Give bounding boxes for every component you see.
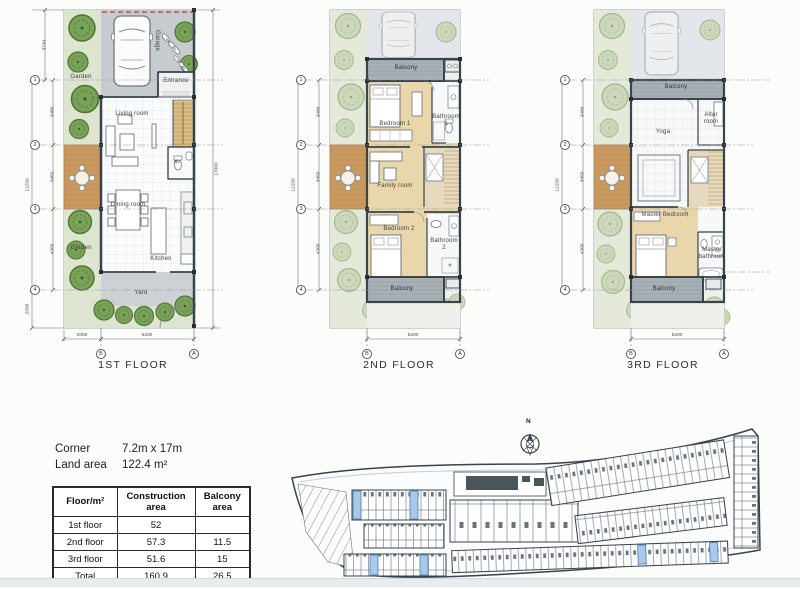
second-floor-plan: Balcony Bedroom 1 Bathroom 1 Family room…: [274, 2, 524, 394]
first-floor-plan: Garden Garage Entrance Living room wc Ga…: [8, 2, 258, 394]
col-balcony-area: Balcony area: [195, 487, 250, 517]
col-construction-area: Construction area: [117, 487, 195, 517]
grid-bubble-4: 4: [30, 285, 40, 295]
grid-bubble-1: 1: [560, 75, 570, 85]
table-header-row: Floor/m² Construction area Balcony area: [53, 487, 250, 517]
label-bathroom1: Bathroom 1: [432, 114, 460, 128]
cell-floor: 2nd floor: [53, 534, 117, 551]
housing-row: [364, 524, 444, 548]
dim-w-garden: 2000: [77, 333, 88, 338]
dim-w-house: 5200: [142, 333, 153, 338]
second-floor-title: 2ND FLOOR: [274, 359, 524, 371]
cell-balcony: 15: [195, 551, 250, 568]
north-arrow-icon: [521, 433, 539, 455]
label-master-bedroom: Master Bedroom: [634, 212, 696, 219]
dim-w-house: 5200: [408, 333, 419, 338]
grid-bubble-a: A: [719, 349, 729, 359]
grid-bubble-b: B: [362, 349, 372, 359]
dim-v-top: 3740: [43, 40, 48, 51]
grid-bubble-2: 2: [30, 140, 40, 150]
table-row: 2nd floor 57.3 11.5: [53, 534, 250, 551]
housing-row: [344, 554, 446, 576]
dim-v2: 3450: [581, 172, 586, 183]
ghost-car-icon: [380, 12, 418, 58]
label-garage: Garage: [153, 30, 160, 51]
master-site-plan: N: [286, 420, 798, 584]
highlighted-unit: [638, 545, 647, 564]
corner-label: Corner: [55, 443, 90, 455]
north-label: N: [526, 418, 531, 425]
label-balcony-bottom: Balcony: [372, 286, 432, 293]
bedroom2-furniture: [370, 215, 401, 277]
deck: [64, 145, 101, 209]
label-garden-mid: Garden: [66, 245, 96, 252]
dim-v-total: 11230: [26, 179, 31, 192]
third-floor-drawing: [538, 2, 788, 394]
grid-bubble-1: 1: [296, 75, 306, 85]
label-bedroom1: Bedroom 1: [370, 121, 420, 128]
grid-bubble-b: B: [96, 349, 106, 359]
deck: [330, 145, 367, 209]
col-floor: Floor/m²: [53, 487, 117, 517]
land-area-value: 122.4 m²: [122, 459, 167, 471]
label-altar-room: Altar room: [698, 112, 724, 126]
grid-bubble-2: 2: [560, 140, 570, 150]
ghost-car-icon: [643, 12, 681, 75]
label-family-room: Family room: [370, 183, 420, 190]
label-dining-room: Dining room: [107, 202, 149, 209]
dim-v-total: 11230: [556, 179, 561, 192]
highlighted-unit: [710, 542, 719, 561]
second-floor-drawing: [274, 2, 524, 394]
highlighted-unit: [410, 491, 418, 519]
dim-v1: 3480: [51, 107, 56, 118]
cell-balcony: [195, 517, 250, 534]
cell-floor: 1st floor: [53, 517, 117, 534]
cell-balcony: 11.5: [195, 534, 250, 551]
grid-bubble-2: 2: [296, 140, 306, 150]
land-area-label: Land area: [55, 459, 107, 471]
first-floor-title: 1ST FLOOR: [8, 359, 258, 371]
car-icon: [112, 16, 153, 86]
dim-v2: 3450: [51, 172, 56, 183]
dim-w-house: 5200: [672, 333, 683, 338]
label-bedroom2: Bedroom 2: [374, 226, 424, 233]
label-master-bathroom: Master bathroom: [698, 247, 726, 261]
label-yard: Yard: [126, 290, 156, 297]
label-balcony-top: Balcony: [372, 65, 440, 72]
area-table: Floor/m² Construction area Balcony area …: [52, 486, 251, 586]
label-balcony-bottom: Balcony: [634, 286, 694, 293]
grid-bubble-3: 3: [296, 204, 306, 214]
cell-construction: 51.6: [117, 551, 195, 568]
label-bathroom2: Bathroom 2: [430, 238, 458, 252]
label-yoga: Yoga: [643, 129, 683, 136]
highlighted-unit: [353, 491, 361, 519]
dim-v-bottom: 2000: [26, 304, 31, 315]
dim-v3: 4300: [317, 244, 322, 255]
stairs: [173, 100, 194, 147]
grid-bubble-3: 3: [30, 204, 40, 214]
grid-bubble-1: 1: [30, 75, 40, 85]
label-garden-top: Garden: [66, 74, 96, 81]
dim-v-total: 11230: [292, 179, 297, 192]
dining-set: [108, 190, 148, 230]
label-kitchen: Kitchen: [146, 256, 176, 263]
housing-column: [734, 436, 758, 548]
table-row: 1st floor 52: [53, 517, 250, 534]
highlighted-unit: [420, 555, 428, 575]
cell-floor: 3rd floor: [53, 551, 117, 568]
grid-bubble-4: 4: [560, 285, 570, 295]
highlighted-unit: [370, 555, 378, 575]
floor-plan-sheet: Garden Garage Entrance Living room wc Ga…: [0, 0, 800, 586]
third-floor-plan: Balcony Yoga Altar room Master Bedroom M…: [538, 2, 788, 394]
housing-row: [450, 500, 578, 542]
dim-v1: 3480: [317, 107, 322, 118]
deck: [594, 145, 631, 209]
first-floor-drawing: [8, 2, 258, 394]
corner-value: 7.2m x 17m: [122, 443, 182, 455]
dim-v1: 3480: [581, 107, 586, 118]
site-plan-drawing: [286, 420, 798, 584]
label-living-room: Living room: [112, 111, 152, 118]
clubhouse-area: [454, 472, 546, 496]
label-entrance: Entrance: [160, 78, 192, 85]
cell-construction: 57.3: [117, 534, 195, 551]
label-wc: wc: [170, 160, 184, 166]
grid-bubble-a: A: [189, 349, 199, 359]
dim-v3: 4300: [51, 244, 56, 255]
grid-bubble-b: B: [626, 349, 636, 359]
dim-v3: 4300: [581, 244, 586, 255]
cell-construction: 52: [117, 517, 195, 534]
dim-v-right: 17000: [215, 162, 220, 175]
label-balcony-top: Balcony: [641, 84, 711, 91]
third-floor-title: 3RD FLOOR: [538, 359, 788, 371]
grid-bubble-4: 4: [296, 285, 306, 295]
dim-v2: 3450: [317, 172, 322, 183]
grid-bubble-a: A: [455, 349, 465, 359]
grid-bubble-3: 3: [560, 204, 570, 214]
housing-row: [352, 490, 446, 520]
table-row: 3rd floor 51.6 15: [53, 551, 250, 568]
